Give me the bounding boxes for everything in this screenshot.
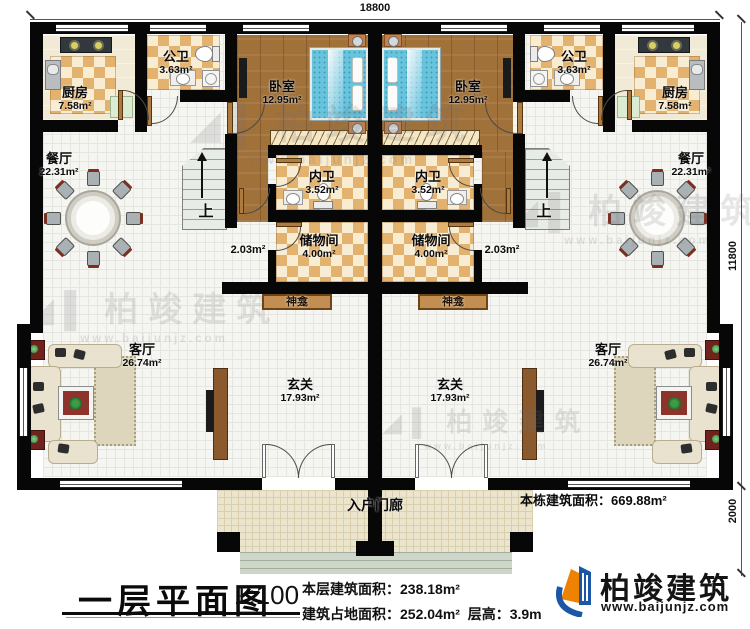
title-underline — [62, 612, 300, 615]
room-label-public-bath-right: 公卫3.63m² — [541, 50, 607, 76]
corridor-door-right — [506, 188, 511, 214]
dining-chair — [651, 251, 664, 266]
window — [722, 368, 731, 436]
window — [243, 24, 309, 32]
room-label-bedroom-right: 卧室12.95m² — [431, 80, 505, 106]
room-label-bedroom-left: 卧室12.95m² — [245, 80, 319, 106]
footprint-area-text: 建筑占地面积：252.04m² 层高：3.9m — [302, 604, 542, 624]
room-label-innerbath-left: 内卫3.52m² — [290, 170, 354, 196]
wall-bedroom-right-b — [513, 134, 525, 228]
room-label-porch: 入户门廊 — [318, 498, 432, 514]
dining-chair — [87, 251, 100, 266]
window — [441, 24, 507, 32]
living-rug-left — [94, 356, 136, 446]
room-label-public-bath-left: 公卫3.63m² — [143, 50, 209, 76]
wall-innerbath-side-left — [268, 145, 276, 158]
window — [568, 480, 690, 488]
room-label-landing-left: 2.03m² — [224, 244, 272, 256]
porch-pillar-right — [510, 532, 533, 552]
dim-line-right-porch — [741, 490, 742, 576]
window — [622, 24, 694, 32]
nightstand — [384, 34, 402, 47]
wall-bedroom-left-a — [225, 22, 237, 102]
dim-right-depth: 11800 — [727, 226, 739, 286]
total-building-area: 本栋建筑面积：669.88m² — [520, 490, 667, 509]
tv-cabinet-left — [213, 368, 228, 460]
wall-innerbath-top-left — [268, 145, 368, 155]
room-label-living-left: 客厅26.74m² — [106, 343, 178, 369]
room-label-dining-left: 餐厅22.31m² — [24, 152, 94, 178]
room-label-kitchen-right: 厨房7.58m² — [642, 86, 708, 112]
room-label-dining-right: 餐厅22.31m² — [656, 152, 726, 178]
nightstand — [348, 34, 366, 47]
room-label-shrine-left: 神龛 — [262, 296, 332, 308]
room-label-innerbath-right: 内卫3.52m² — [396, 170, 460, 196]
wall-right-jog — [707, 324, 733, 333]
room-label-storage-right: 储物间4.00m² — [396, 234, 466, 260]
room-label-kitchen-left: 厨房7.58m² — [42, 86, 108, 112]
entry-door-opening-right — [415, 478, 488, 490]
window — [150, 24, 206, 32]
window — [60, 480, 182, 488]
company-url: www.baijunjz.com — [601, 599, 729, 614]
title-underline-thin — [66, 617, 300, 618]
window — [56, 24, 128, 32]
kitchen-door-right — [627, 90, 632, 120]
toilet-tank — [417, 201, 437, 209]
company-logo-icon — [554, 561, 596, 617]
room-label-landing-right: 2.03m² — [478, 244, 526, 256]
plan-scale: 1:100 — [234, 580, 299, 611]
toilet-tank — [313, 201, 333, 209]
wall-innerbath-side-right — [474, 145, 482, 158]
room-label-foyer-right: 玄关17.93m² — [419, 378, 481, 404]
room-label-storage-left: 储物间4.00m² — [284, 234, 354, 260]
stove-left — [60, 37, 112, 53]
porch-pillar-left — [217, 532, 240, 552]
window — [19, 368, 28, 436]
floor-plan-page: ◢▌柏竣建筑 www.baijunjz.com ◢▌柏竣建筑 www.baiju… — [0, 0, 750, 629]
dining-table-left — [67, 192, 119, 244]
wall-center-divider — [368, 22, 382, 545]
dining-chair — [46, 212, 61, 225]
dim-line-right — [741, 22, 742, 490]
dim-porch-depth: 2000 — [727, 481, 739, 541]
bedroom-door-right — [517, 102, 523, 134]
entry-door-leaf — [331, 444, 335, 478]
entry-door-leaf — [484, 444, 488, 478]
window — [544, 24, 600, 32]
wall-storage-bottom-right — [382, 282, 528, 294]
floor-area-text: 本层建筑面积：238.18m² — [302, 579, 460, 599]
floor-height-text: 层高：3.9m — [468, 606, 542, 622]
wall-left-jog — [17, 324, 43, 333]
room-label-living-right: 客厅26.74m² — [572, 343, 644, 369]
sofa-right — [652, 440, 702, 464]
tv-left — [206, 390, 214, 432]
entry-door-opening-left — [262, 478, 335, 490]
wall-innerbath-top-right — [382, 145, 482, 155]
wall-bedroom-left-b — [225, 134, 237, 228]
room-label-shrine-right: 神龛 — [418, 296, 488, 308]
wall-bedroom-right-a — [513, 22, 525, 102]
stairs-up-label-right: 上 — [535, 204, 553, 221]
stove-right — [638, 37, 690, 53]
plant-right — [668, 397, 681, 410]
living-rug-right — [614, 356, 656, 446]
dining-chair — [126, 212, 141, 225]
toilet-tank — [212, 46, 220, 62]
wall-kitchen-bottom-left — [30, 120, 118, 132]
room-label-foyer-left: 玄关17.93m² — [269, 378, 331, 404]
dim-top-width: 18800 — [345, 2, 405, 14]
dim-line-top — [30, 19, 720, 20]
plant-left — [69, 397, 82, 410]
wall-innerbath-bottom-left — [268, 210, 368, 222]
wall-storage-bottom-left — [222, 282, 368, 294]
stairs-up-label-left: 上 — [197, 204, 215, 221]
wall-innerbath-bottom-right — [382, 210, 482, 222]
sofa-left — [48, 440, 98, 464]
wall-kitchen-bottom-right — [632, 120, 720, 132]
